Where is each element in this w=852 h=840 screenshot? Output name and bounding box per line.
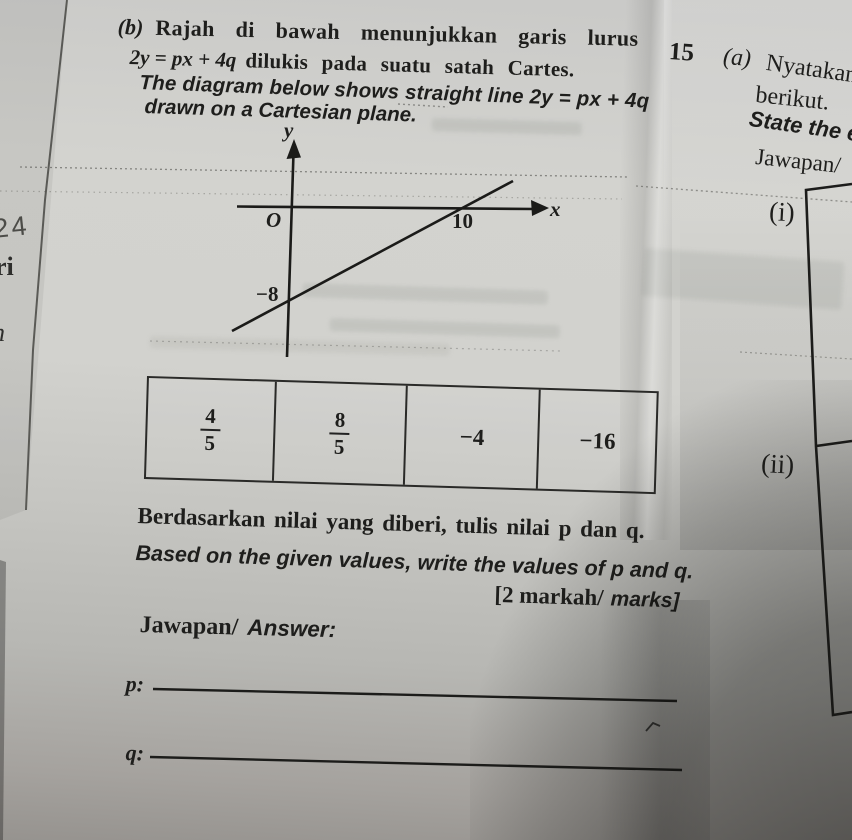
cartesian-graph	[232, 153, 536, 357]
answer-heading: Jawapan/ Answer:	[139, 612, 336, 644]
fraction-four-fifths: 4 5	[199, 405, 221, 454]
cut-off-text-n: n	[0, 318, 5, 348]
graph-x-intercept-label: 10	[452, 209, 473, 234]
part-a-label: (a)	[722, 44, 752, 73]
exam-paper-photo: (b) Rajah di bawah menunjukkan garis lur…	[0, 0, 852, 840]
cut-off-text-ri: ri	[0, 252, 14, 282]
answer-label: Answer:	[247, 615, 336, 643]
pen-tick-mark	[646, 723, 660, 731]
marks-english: marks]	[610, 587, 680, 613]
q-answer-label: q:	[125, 740, 144, 766]
p-answer-line	[153, 689, 677, 701]
values-table: 4 5 8 5 −4 −16	[144, 376, 659, 494]
p-answer-label: p:	[125, 671, 144, 697]
item-ii-label: (ii)	[760, 448, 795, 481]
item-i-label: (i)	[768, 196, 795, 228]
answer-box-borders	[806, 184, 852, 715]
table-cell: 8 5	[273, 382, 407, 485]
y-axis	[287, 153, 294, 357]
table-cell: −16	[538, 390, 656, 492]
value-minus-16: −16	[579, 427, 616, 454]
fraction-eight-fifths: 8 5	[329, 409, 351, 458]
graph-y-intercept-label: −8	[256, 282, 278, 307]
jawapan-label: Jawapan/	[139, 612, 238, 642]
marks-malay: [2 markah/	[494, 582, 604, 611]
q-answer-line	[150, 757, 682, 770]
handwritten-pencil-note: 24	[0, 210, 31, 245]
question-part-label: (b)	[117, 14, 143, 41]
graph-y-label: y	[284, 118, 293, 143]
table-cell: 4 5	[146, 378, 276, 481]
graph-origin-label: O	[266, 208, 281, 233]
table-cell: −4	[405, 386, 541, 489]
bottom-left-edge-shade	[0, 560, 6, 840]
x-axis	[237, 207, 536, 210]
question-number-15: 15	[668, 38, 695, 68]
graph-x-label: x	[550, 197, 561, 222]
plotted-line	[232, 181, 513, 331]
question-equation: 2y = px + 4q	[129, 45, 236, 73]
x-axis-arrowhead	[531, 200, 549, 216]
value-minus-4: −4	[459, 424, 484, 451]
